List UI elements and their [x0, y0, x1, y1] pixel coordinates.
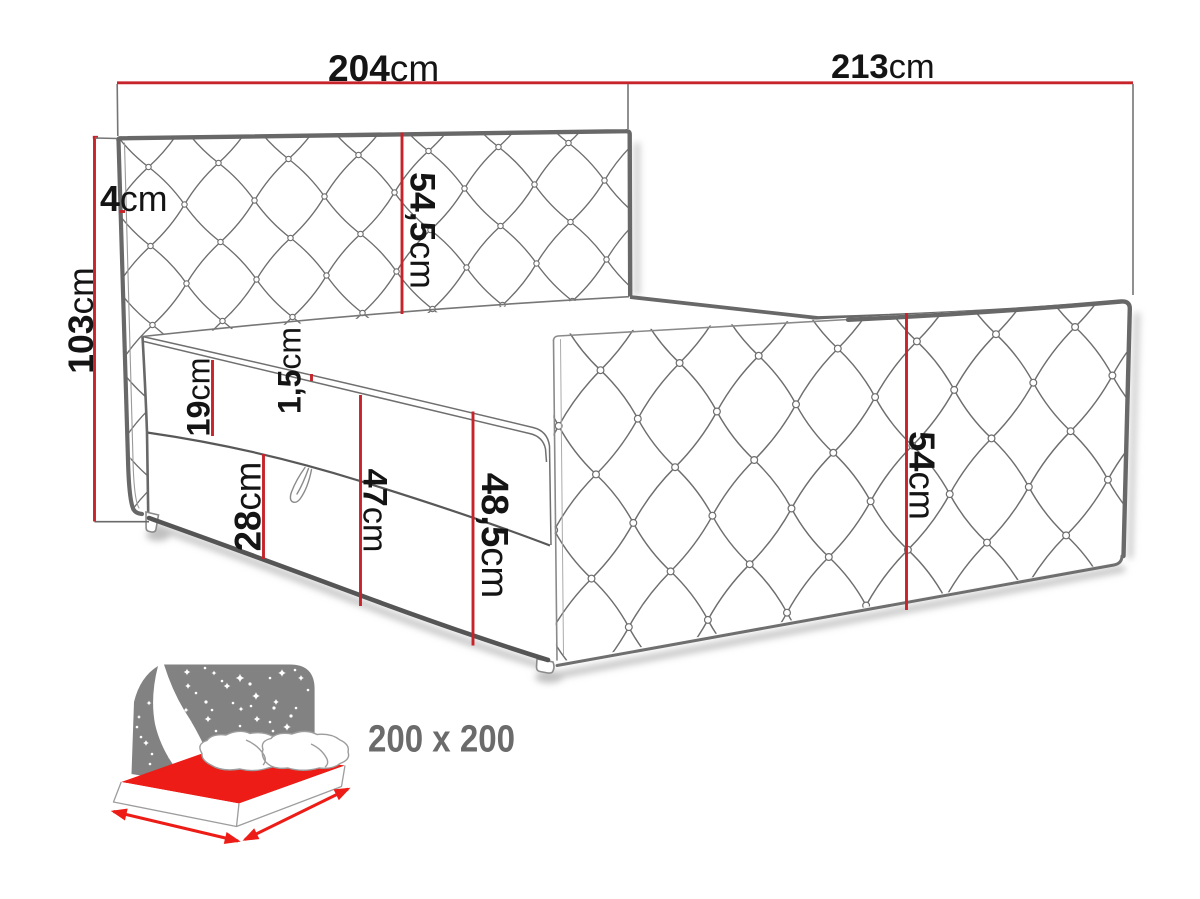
svg-text:54cm: 54cm: [902, 431, 943, 520]
svg-text:200 x 200: 200 x 200: [368, 719, 515, 761]
svg-text:103cm: 103cm: [61, 267, 101, 373]
svg-text:4cm: 4cm: [100, 179, 168, 219]
svg-text:47cm: 47cm: [356, 469, 394, 553]
svg-text:204cm: 204cm: [328, 47, 439, 89]
svg-text:19cm: 19cm: [181, 357, 217, 436]
svg-text:1,5cm: 1,5cm: [272, 327, 308, 414]
svg-text:213cm: 213cm: [831, 48, 935, 86]
svg-text:48,5cm: 48,5cm: [473, 473, 516, 598]
svg-text:54,5cm: 54,5cm: [403, 172, 443, 289]
svg-text:28cm: 28cm: [228, 462, 269, 552]
